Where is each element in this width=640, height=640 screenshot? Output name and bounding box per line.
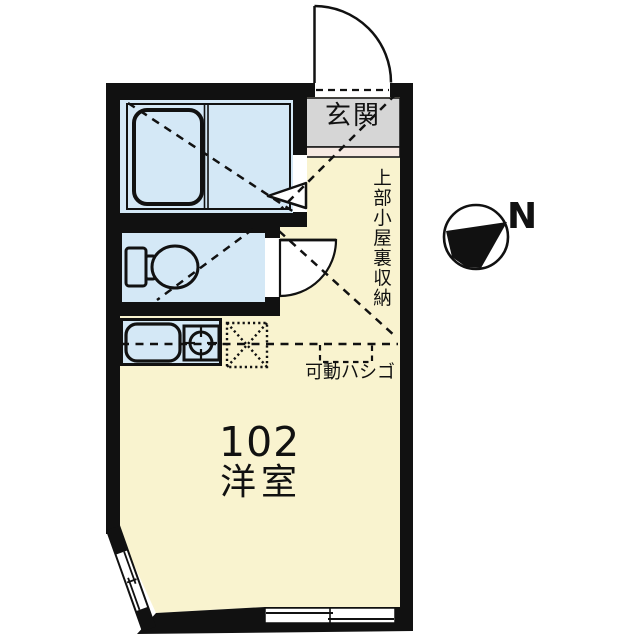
bottom-window: [265, 608, 395, 623]
bathroom: [106, 93, 307, 227]
toilet-room: [106, 225, 280, 316]
floorplan-canvas: 玄関 上部小屋裏収納 可動ハシゴ 102 洋室 N: [0, 0, 640, 640]
toilet-tank: [126, 248, 146, 286]
room-type-label: 洋室: [220, 465, 302, 501]
toilet-bowl-icon: [152, 246, 198, 288]
unit-number-label: 102: [219, 422, 300, 463]
toilet-door-opening: [265, 238, 280, 297]
bathtub-icon: [134, 110, 202, 204]
entrance-door-arc: [315, 6, 392, 83]
left-wall: [106, 83, 120, 534]
kitchen-sink-icon: [126, 324, 180, 361]
north-label: N: [507, 199, 537, 235]
entrance-door: [315, 6, 392, 97]
movable-ladder-label: 可動ハシゴ: [300, 364, 400, 382]
entrance-step: [306, 147, 400, 157]
entrance-label: 玄関: [306, 103, 400, 129]
right-wall: [400, 83, 413, 631]
kitchen: [122, 320, 221, 365]
floorplan-drawing: [0, 0, 640, 640]
attic-storage-label: 上部小屋裏収納: [371, 168, 390, 308]
north-compass: [444, 205, 508, 269]
